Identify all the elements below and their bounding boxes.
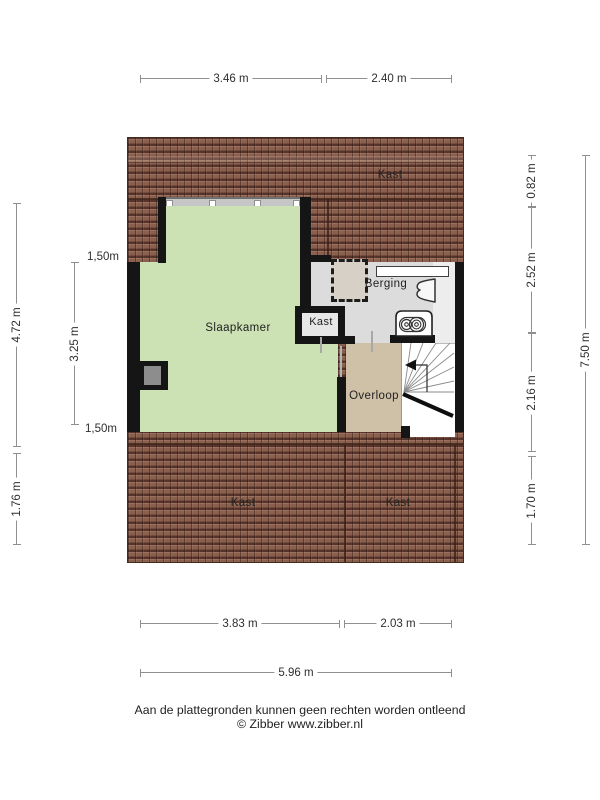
roof-window	[331, 259, 368, 302]
ventilation-unit-icon	[408, 277, 440, 304]
footer-credit: © Zibber www.zibber.nl	[0, 717, 600, 731]
floorplan-canvas: Slaapkamer Berging Kast Kast Overloop Ka…	[0, 0, 600, 800]
room-label-kast-attic-bottom-left: Kast	[231, 497, 256, 509]
door-line-slaapkamer-overloop	[340, 346, 342, 377]
roof-seam-bottom-vertical-1	[344, 445, 346, 562]
dim-right-inner-4: 1.70 m	[531, 456, 532, 545]
wall-left-pillar	[158, 197, 166, 263]
dim-right-total: 7.50 m	[585, 155, 586, 545]
wall-left-outer	[127, 262, 140, 432]
boiler-icon	[394, 309, 434, 337]
room-slaapkamer-upper	[166, 206, 300, 262]
wall-berging-bottom-left	[295, 336, 355, 344]
room-label-kast-closet: Kast	[309, 316, 333, 328]
dim-left-inner: 3.25 m	[74, 262, 75, 425]
room-label-slaapkamer: Slaapkamer	[205, 322, 270, 334]
dim-bottom-left: 3.83 m	[140, 623, 340, 624]
window-strip	[166, 197, 300, 206]
dim-headroom-bottom: 1,50m	[85, 423, 117, 435]
room-label-overloop: Overloop	[349, 390, 399, 402]
room-label-berging: Berging	[365, 278, 407, 290]
dim-right-inner-2: 2.52 m	[531, 207, 532, 333]
dim-left-outer-upper: 4.72 m	[16, 203, 17, 447]
wall-stairs-stub	[401, 426, 410, 438]
roof-seam-bottom-vertical-2	[454, 445, 456, 562]
roof-ridge-line	[128, 156, 463, 163]
door-line-closet	[320, 337, 322, 353]
dim-right-inner-1: 0.82 m	[531, 155, 532, 207]
wall-right-outer	[455, 262, 464, 432]
chimney-flue	[144, 366, 161, 385]
wall-berging-top	[302, 255, 331, 262]
dim-top-right: 2.40 m	[326, 78, 452, 79]
footer-disclaimer: Aan de plattegronden kunnen geen rechten…	[0, 703, 600, 717]
stairs-svg	[401, 343, 455, 437]
room-overloop	[346, 343, 401, 432]
dim-bottom-total: 5.96 m	[140, 672, 452, 673]
shelf	[376, 266, 449, 277]
roof-seam-bottom	[128, 443, 463, 445]
chimney	[139, 361, 168, 390]
room-label-kast-attic-bottom-right: Kast	[386, 497, 411, 509]
wall-overloop-left	[337, 377, 346, 432]
room-label-kast-attic-top: Kast	[378, 169, 403, 181]
door-line-berging-overloop	[371, 331, 373, 352]
stairs	[401, 343, 455, 437]
dim-left-outer-lower: 1.76 m	[16, 453, 17, 545]
dim-top-left: 3.46 m	[140, 78, 322, 79]
dim-bottom-right: 2.03 m	[344, 623, 452, 624]
dim-right-inner-3: 2.16 m	[531, 333, 532, 452]
roof-seam-top-vertical	[327, 199, 329, 262]
dim-headroom-top: 1,50m	[87, 251, 119, 263]
